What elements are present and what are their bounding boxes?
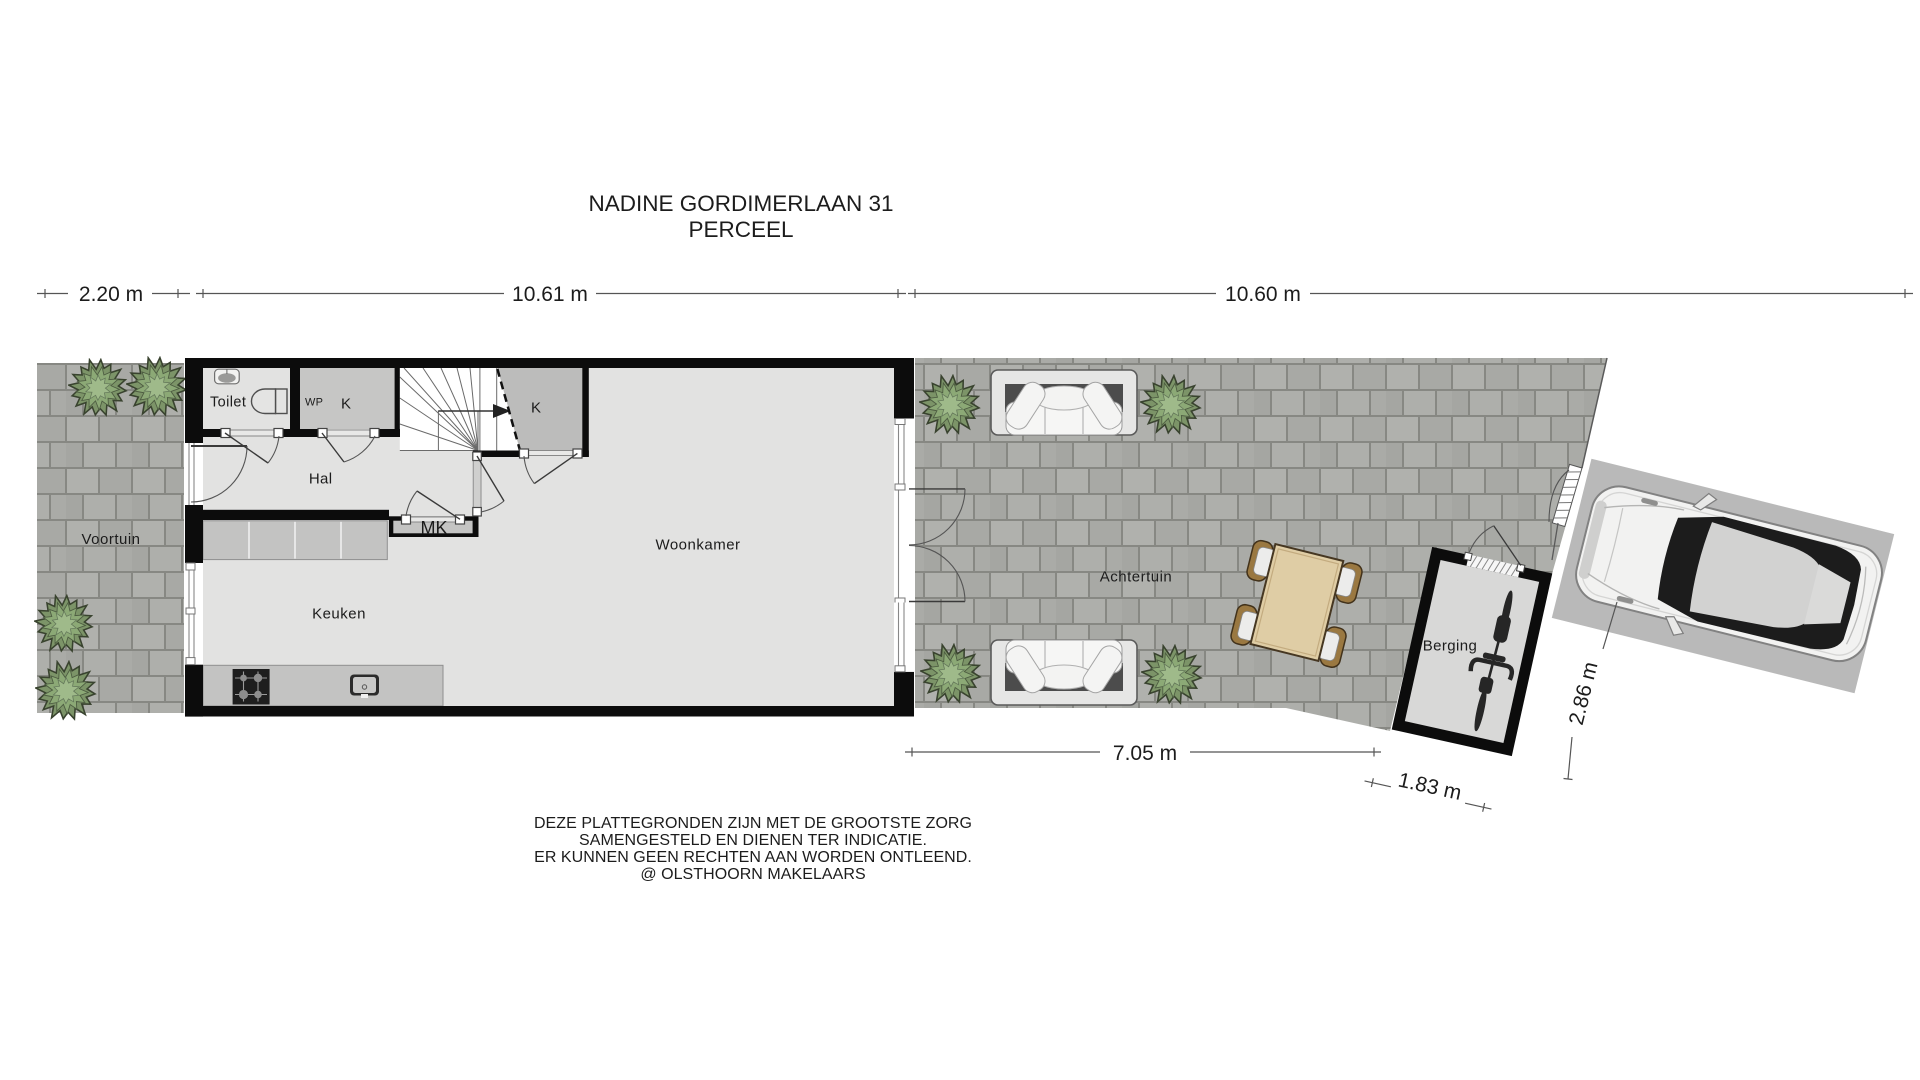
svg-text:2.20 m: 2.20 m xyxy=(79,283,143,306)
svg-text:SAMENGESTELD EN DIENEN TER IND: SAMENGESTELD EN DIENEN TER INDICATIE. xyxy=(579,832,927,849)
svg-text:Woonkamer: Woonkamer xyxy=(655,537,740,554)
svg-text:Berging: Berging xyxy=(1423,638,1478,655)
svg-text:WP: WP xyxy=(305,397,323,409)
svg-text:Toilet: Toilet xyxy=(210,395,246,411)
svg-text:7.05 m: 7.05 m xyxy=(1113,742,1177,765)
svg-text:NADINE GORDIMERLAAN 31: NADINE GORDIMERLAAN 31 xyxy=(588,191,893,216)
svg-text:@ OLSTHOORN MAKELAARS: @ OLSTHOORN MAKELAARS xyxy=(640,866,865,883)
svg-text:MK: MK xyxy=(421,518,448,538)
svg-text:10.61 m: 10.61 m xyxy=(512,283,588,306)
svg-text:PERCEEL: PERCEEL xyxy=(688,217,793,242)
svg-text:K: K xyxy=(531,400,541,417)
svg-text:Hal: Hal xyxy=(309,471,333,488)
svg-text:DEZE PLATTEGRONDEN ZIJN MET DE: DEZE PLATTEGRONDEN ZIJN MET DE GROOTSTE … xyxy=(534,815,972,832)
svg-text:Achtertuin: Achtertuin xyxy=(1100,569,1173,586)
svg-text:K: K xyxy=(341,396,351,413)
svg-text:Voortuin: Voortuin xyxy=(81,531,140,548)
svg-text:ER KUNNEN GEEN RECHTEN AAN WOR: ER KUNNEN GEEN RECHTEN AAN WORDEN ONTLEE… xyxy=(534,849,972,866)
svg-text:Keuken: Keuken xyxy=(312,606,366,623)
svg-text:10.60 m: 10.60 m xyxy=(1225,283,1301,306)
